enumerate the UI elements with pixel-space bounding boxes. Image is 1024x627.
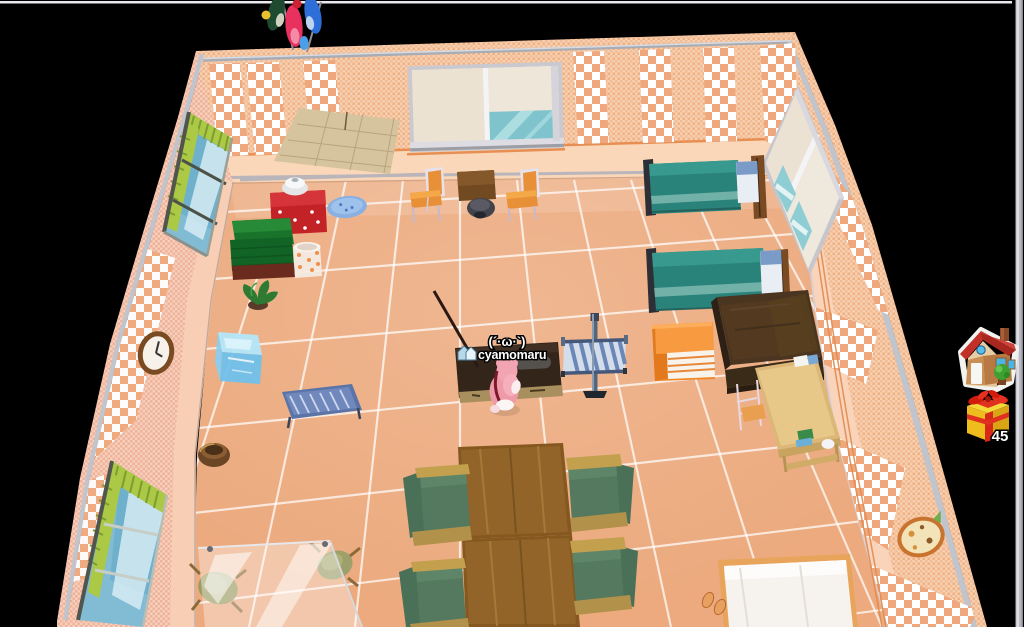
svg-text:45: 45 [992,428,1009,445]
svg-text:cyamomaru: cyamomaru [478,348,546,362]
svg-text:(´·ω·`): (´·ω·`) [489,334,526,349]
